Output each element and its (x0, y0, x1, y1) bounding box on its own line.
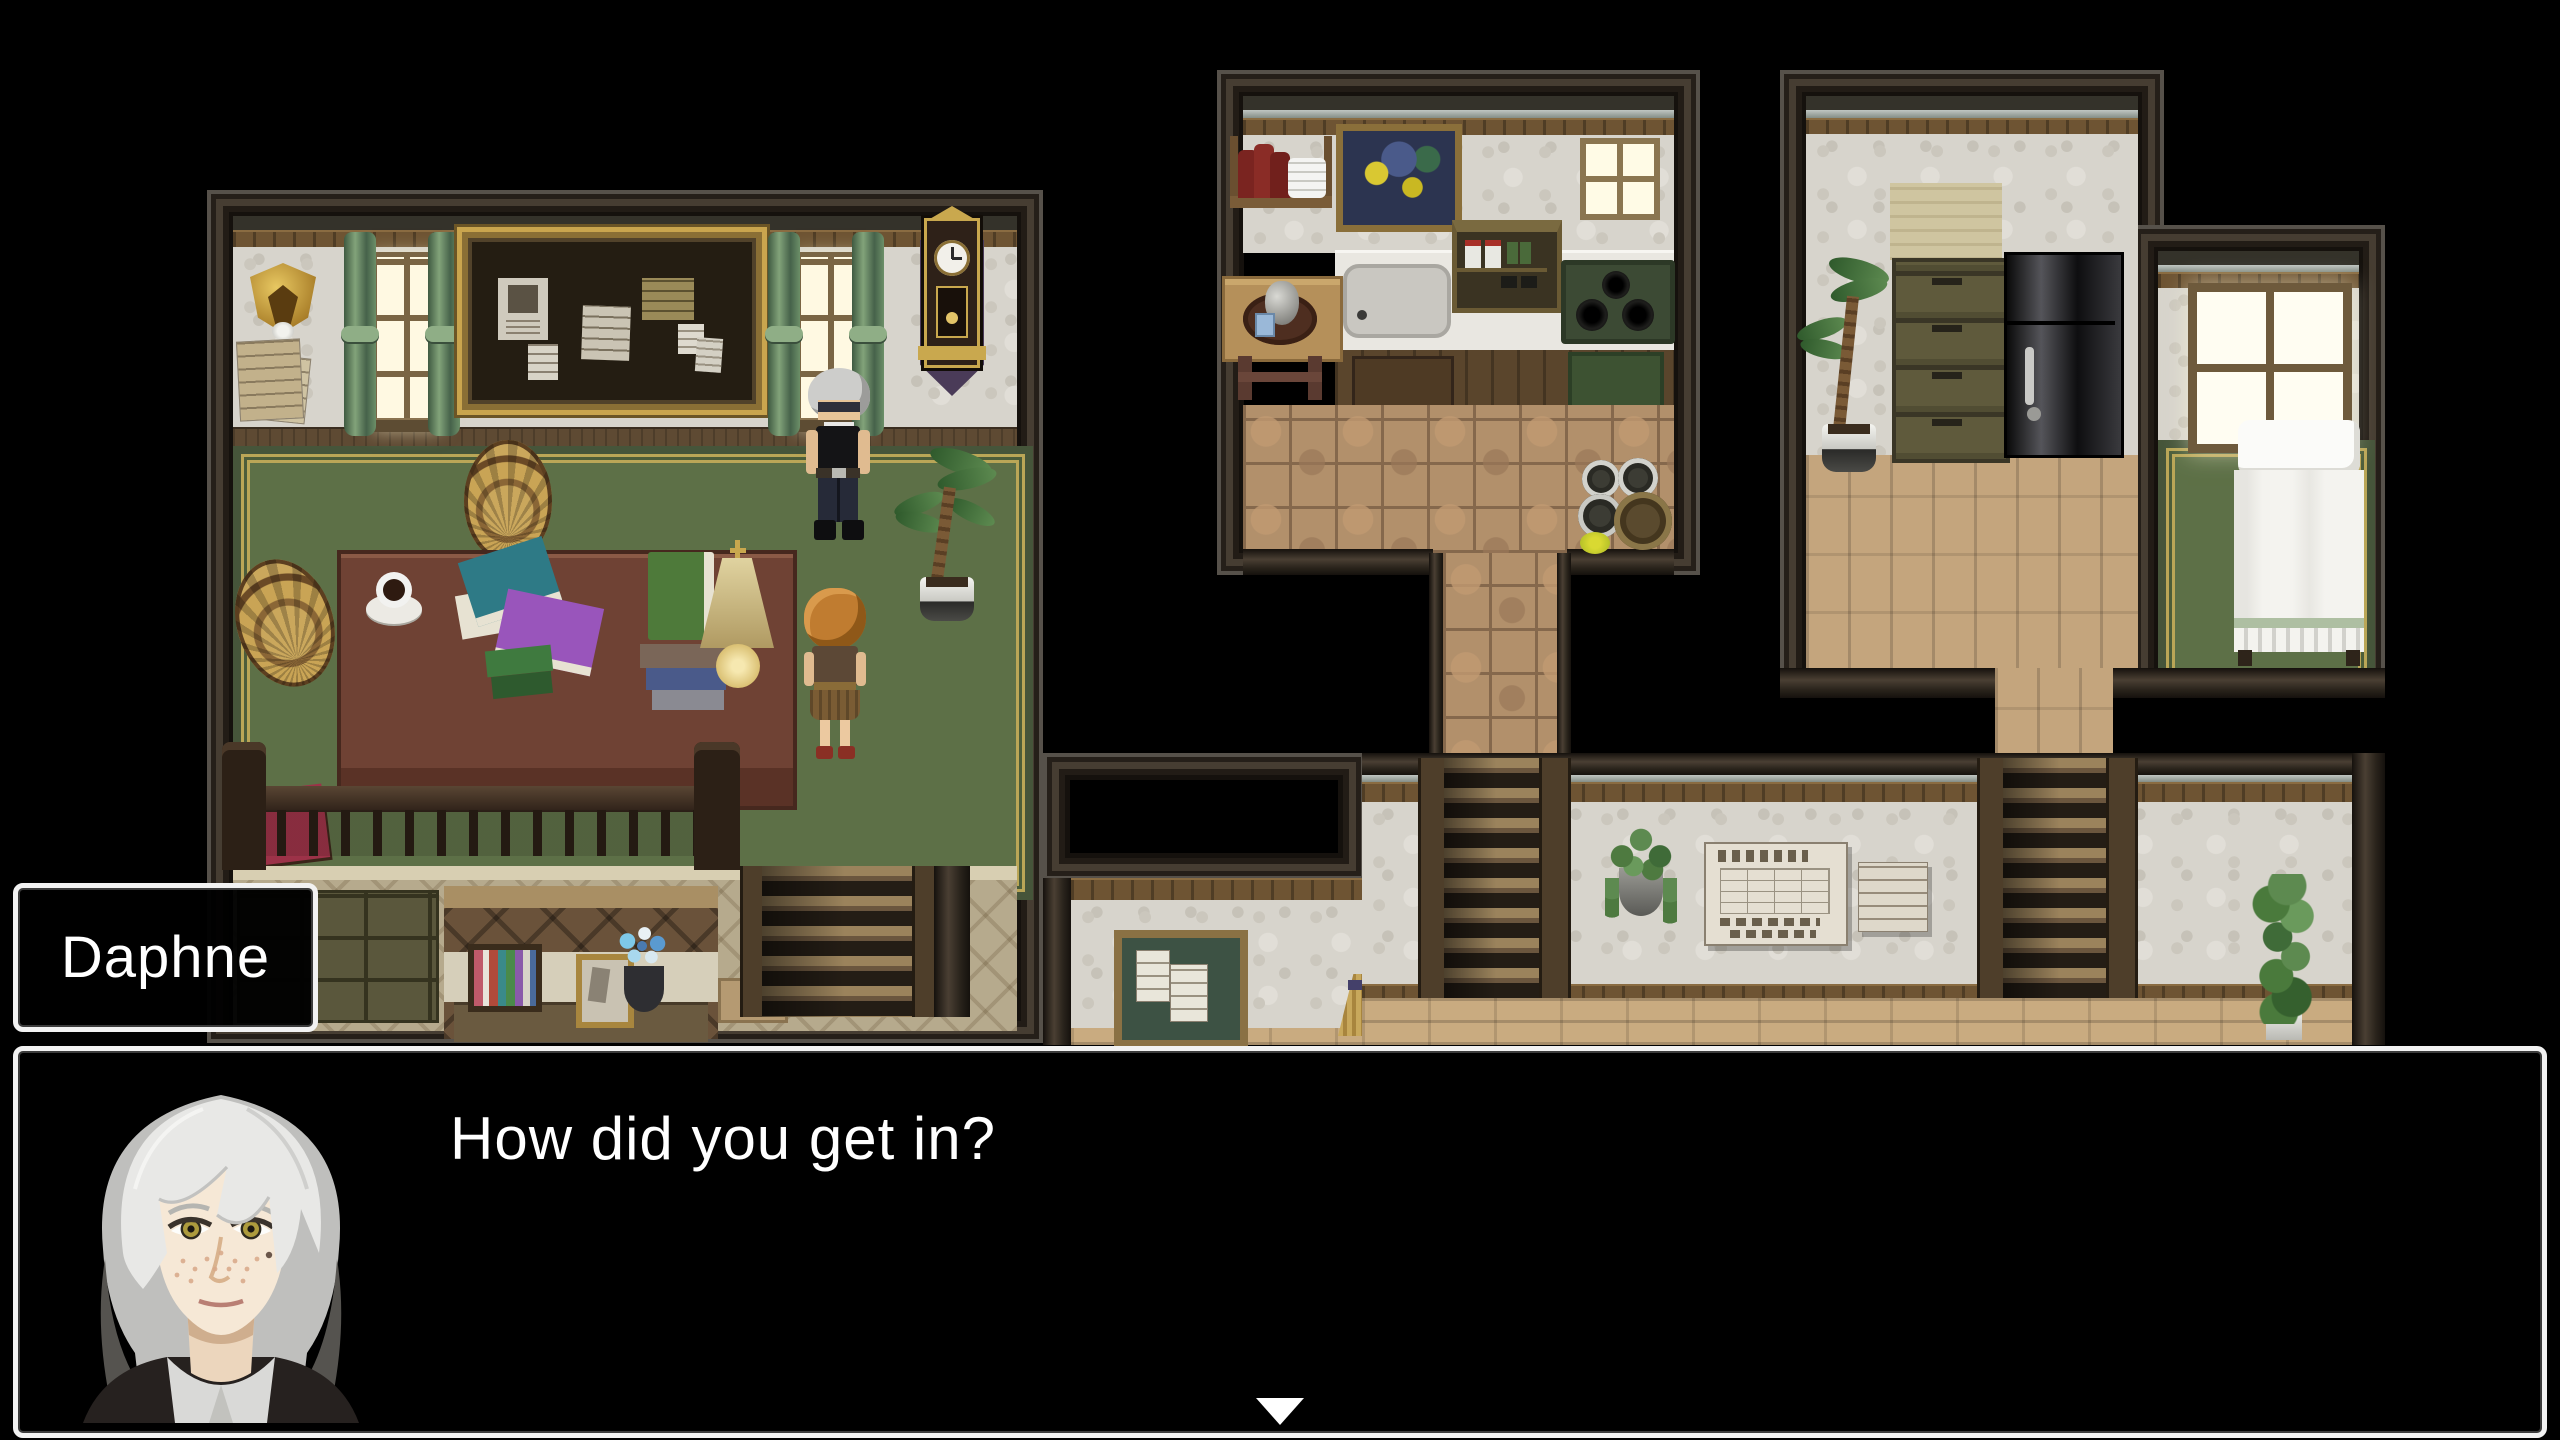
curtain (428, 232, 460, 436)
curtain (768, 232, 800, 436)
notice-room-frame (1043, 878, 1071, 1045)
book-stack (646, 668, 726, 690)
lamp-finial (735, 540, 740, 558)
newel-post (222, 742, 266, 870)
staircase-bedroom (2003, 758, 2106, 998)
stove (1561, 260, 1675, 344)
bedroom-palm-plant (1800, 260, 1896, 500)
kitchen-steel-line (1243, 110, 1674, 118)
kitchen-table (1222, 276, 1343, 362)
bedroom-steel-line (2158, 265, 2359, 272)
passage-frame (1429, 553, 1443, 763)
coffee-cup (376, 572, 412, 608)
name-box: Daphne (13, 883, 318, 1032)
flower-vase (614, 926, 670, 1016)
newel-post (694, 742, 740, 870)
lamp-base (716, 644, 760, 688)
notice-large (1704, 842, 1848, 946)
green-notice-board (1114, 930, 1248, 1048)
kitchen-shelf (1230, 136, 1332, 212)
wall-note-large (236, 338, 304, 421)
bedroom-floor-edge (1780, 668, 1995, 698)
npc-silver-hair (800, 368, 876, 540)
barrels (1578, 458, 1674, 555)
dialogue-window[interactable]: How did you get in? (13, 1046, 2547, 1438)
sink (1343, 264, 1451, 338)
railing-balusters (245, 810, 717, 856)
npc-orange-hair (802, 588, 868, 760)
passage-frame (1557, 553, 1571, 763)
palm-plant (893, 447, 997, 647)
book-stack (652, 690, 724, 710)
spice-rack (1452, 220, 1562, 313)
notice-small (1858, 862, 1928, 932)
stair-frame (934, 866, 970, 1017)
daphne-portrait (63, 1069, 379, 1423)
continue-indicator-icon[interactable] (1256, 1398, 1304, 1425)
cabinet-door (1352, 356, 1454, 410)
linen-panel (1890, 183, 2002, 260)
refrigerator (2004, 252, 2124, 458)
kitchen-floor-edge (1243, 549, 1433, 575)
structure-void (1043, 753, 1365, 880)
staircase-kitchen (1444, 758, 1539, 998)
bedroom-floor-edge (2113, 668, 2385, 698)
stair-rail (2106, 758, 2138, 998)
bed (2234, 420, 2364, 668)
staircase-study (762, 866, 912, 1017)
bedroom-steel-line (1806, 110, 2138, 118)
flower-painting (1336, 124, 1462, 232)
hanging-plant (1603, 820, 1679, 950)
kitchen-window (1580, 138, 1660, 220)
kitchen-passage (1443, 553, 1557, 763)
railing-bar (231, 786, 731, 812)
game-screen: Daphne (0, 0, 2560, 1440)
corridor-frame-right (2352, 753, 2385, 1045)
book-upright (648, 552, 714, 640)
stair-rail (1539, 758, 1571, 998)
corridor-floor (1362, 998, 2385, 1045)
dresser (1892, 258, 2010, 463)
bookshelf (468, 944, 542, 1012)
grandfather-clock (924, 218, 980, 368)
ivy-plant (2248, 874, 2318, 1044)
dialogue-text: How did you get in? (450, 1101, 2350, 1176)
bulletin-board (468, 238, 756, 404)
speaker-name: Daphne (61, 924, 270, 991)
wall-plaque-tassel (272, 322, 294, 340)
curtain (344, 232, 376, 436)
table-legs (1232, 356, 1328, 400)
